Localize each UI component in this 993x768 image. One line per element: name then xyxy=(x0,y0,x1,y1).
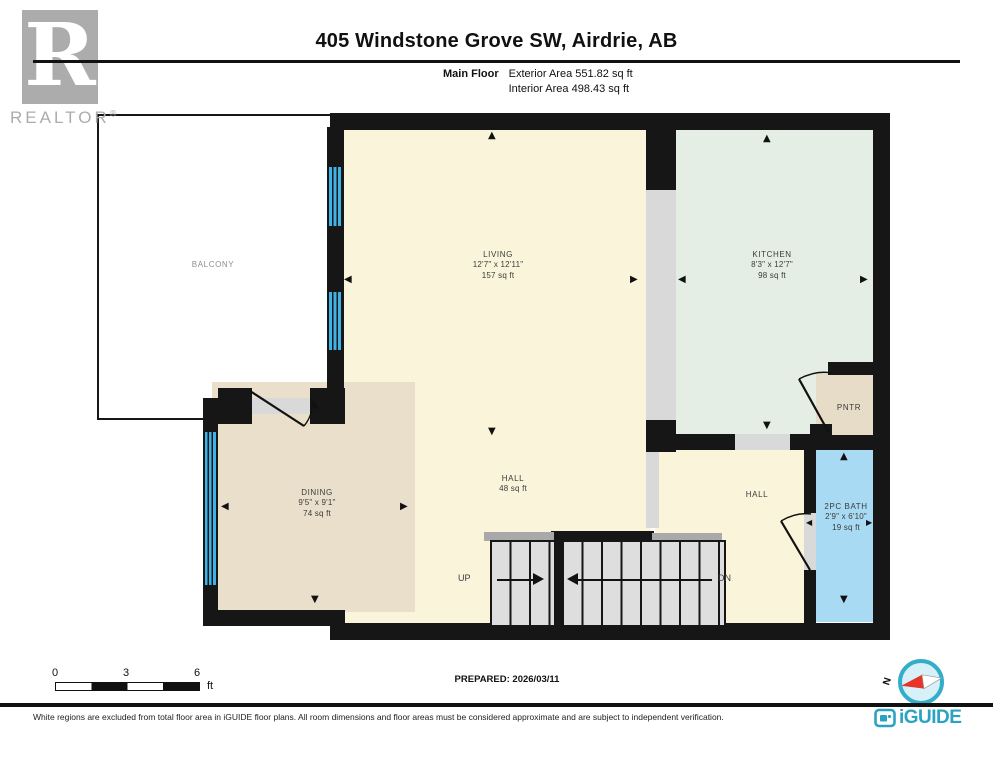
scale-tick-3: 3 xyxy=(123,667,129,679)
room-name: BALCONY xyxy=(163,260,263,270)
kitchen-hall-opening xyxy=(735,434,790,450)
wall-right xyxy=(873,113,890,640)
realtor-logo-text: REALTOR® xyxy=(10,108,119,128)
room-label-hall-center: HALL 48 sq ft xyxy=(468,474,558,495)
dim-arrow-living-right: ▶ xyxy=(630,275,638,285)
iguide-logo-text: iGUIDE xyxy=(899,707,961,729)
room-name: LIVING xyxy=(438,250,558,260)
living-window-upper xyxy=(327,167,344,226)
dim-arrow-kitchen-top: ▲ xyxy=(763,134,771,144)
room-label-kitchen: KITCHEN 8'3" x 12'7" 98 sq ft xyxy=(712,250,832,281)
stairs-down-arrow-line xyxy=(578,579,712,581)
room-area: 74 sq ft xyxy=(257,509,377,519)
room-label-balcony: BALCONY xyxy=(163,260,263,270)
stairs-down xyxy=(562,540,726,627)
wall-pantry-top xyxy=(828,362,878,375)
dim-arrow-dining-left: ◀ xyxy=(221,502,229,512)
page-title: 405 Windstone Grove SW, Airdrie, AB xyxy=(0,30,993,53)
dim-arrow-kitchen-right: ▶ xyxy=(860,275,868,285)
stairs-up xyxy=(490,540,556,627)
floor-info: Main Floor Exterior Area 551.82 sq ft In… xyxy=(443,68,633,98)
stairs-up-label: UP xyxy=(458,573,471,583)
room-label-dining: DINING 9'5" x 9'1" 74 sq ft xyxy=(257,488,377,519)
floor-plan-page: R REALTOR® 405 Windstone Grove SW, Airdr… xyxy=(0,0,993,768)
wall-top xyxy=(330,113,890,130)
scale-tick-6: 6 xyxy=(194,667,200,679)
wall-living-left-a xyxy=(327,127,344,167)
dim-arrow-living-top: ▲ xyxy=(488,131,496,141)
wall-living-kitchen-top xyxy=(646,127,676,190)
scale-tick-0: 0 xyxy=(52,667,58,679)
room-dimensions: 2'9" x 6'10" xyxy=(806,512,886,522)
dim-arrow-bath-left: ◀ xyxy=(806,519,812,527)
wall-living-left-b xyxy=(327,226,344,292)
hall-hall-opening xyxy=(646,452,659,528)
exterior-area-text: Exterior Area 551.82 sq ft xyxy=(509,68,633,80)
wall-dining-bottom xyxy=(203,610,345,626)
dim-arrow-bath-bottom: ▼ xyxy=(840,595,848,605)
wall-dining-left-a xyxy=(203,398,218,432)
room-label-living: LIVING 12'7" x 12'11" 157 sq ft xyxy=(438,250,558,281)
living-window-lower xyxy=(327,292,344,350)
stairs-up-arrow-line xyxy=(497,579,535,581)
compass-icon xyxy=(895,656,947,708)
realtor-logo-icon: R xyxy=(22,10,98,104)
room-name: DINING xyxy=(257,488,377,498)
living-kitchen-opening xyxy=(646,190,676,420)
room-dimensions: 8'3" x 12'7" xyxy=(712,260,832,270)
compass-north-label: N xyxy=(881,676,894,686)
title-divider xyxy=(33,60,960,63)
room-name: PNTR xyxy=(819,403,879,413)
realtor-word: REALTOR xyxy=(10,108,110,127)
dining-window xyxy=(203,432,218,585)
dim-arrow-kitchen-left: ◀ xyxy=(678,275,686,285)
footer-disclaimer: White regions are excluded from total fl… xyxy=(33,712,843,722)
dim-arrow-living-left: ◀ xyxy=(344,275,352,285)
iguide-logo-icon xyxy=(874,707,896,729)
stairs-down-arrowhead xyxy=(567,573,578,585)
dim-arrow-bath-right: ▶ xyxy=(866,519,872,527)
dim-arrow-dining-right: ▶ xyxy=(400,502,408,512)
interior-area-text: Interior Area 498.43 sq ft xyxy=(509,83,633,95)
room-label-pantry: PNTR xyxy=(819,403,879,413)
stairs-down-label: DN xyxy=(718,573,731,583)
room-name: KITCHEN xyxy=(712,250,832,260)
room-dimensions: 12'7" x 12'11" xyxy=(438,260,558,270)
room-area: 19 sq ft xyxy=(806,523,886,533)
wall-balcony-door-a xyxy=(218,388,252,424)
room-area: 157 sq ft xyxy=(438,271,558,281)
room-dimensions: 9'5" x 9'1" xyxy=(257,498,377,508)
dim-arrow-kitchen-bottom: ▼ xyxy=(763,421,771,431)
scale-bar xyxy=(55,682,200,691)
room-name: HALL xyxy=(712,490,802,500)
room-label-hall-right: HALL xyxy=(712,490,802,500)
room-name: HALL xyxy=(468,474,558,484)
wall-bath-left-lower xyxy=(804,570,816,623)
dim-arrow-dining-top: ▲ xyxy=(311,400,319,410)
wall-dining-left-b xyxy=(203,585,218,612)
footer-divider xyxy=(0,703,993,707)
wall-kitchen-bottom-left xyxy=(670,434,735,450)
floor-label: Main Floor xyxy=(443,68,499,98)
balcony-door-threshold xyxy=(252,398,310,414)
prepared-date: PREPARED: 2026/03/11 xyxy=(432,674,582,685)
scale-unit: ft xyxy=(207,680,213,692)
iguide-logo: iGUIDE xyxy=(874,707,961,729)
dim-arrow-dining-bottom: ▼ xyxy=(311,595,319,605)
registered-symbol: ® xyxy=(110,108,120,118)
room-label-bath: 2PC BATH 2'9" x 6'10" 19 sq ft xyxy=(806,502,886,533)
dim-arrow-living-bottom: ▼ xyxy=(488,427,496,437)
dim-arrow-bath-top: ▲ xyxy=(840,452,848,462)
stairs-up-arrowhead xyxy=(533,573,544,585)
room-area: 48 sq ft xyxy=(468,484,558,494)
room-area: 98 sq ft xyxy=(712,271,832,281)
room-name: 2PC BATH xyxy=(806,502,886,512)
